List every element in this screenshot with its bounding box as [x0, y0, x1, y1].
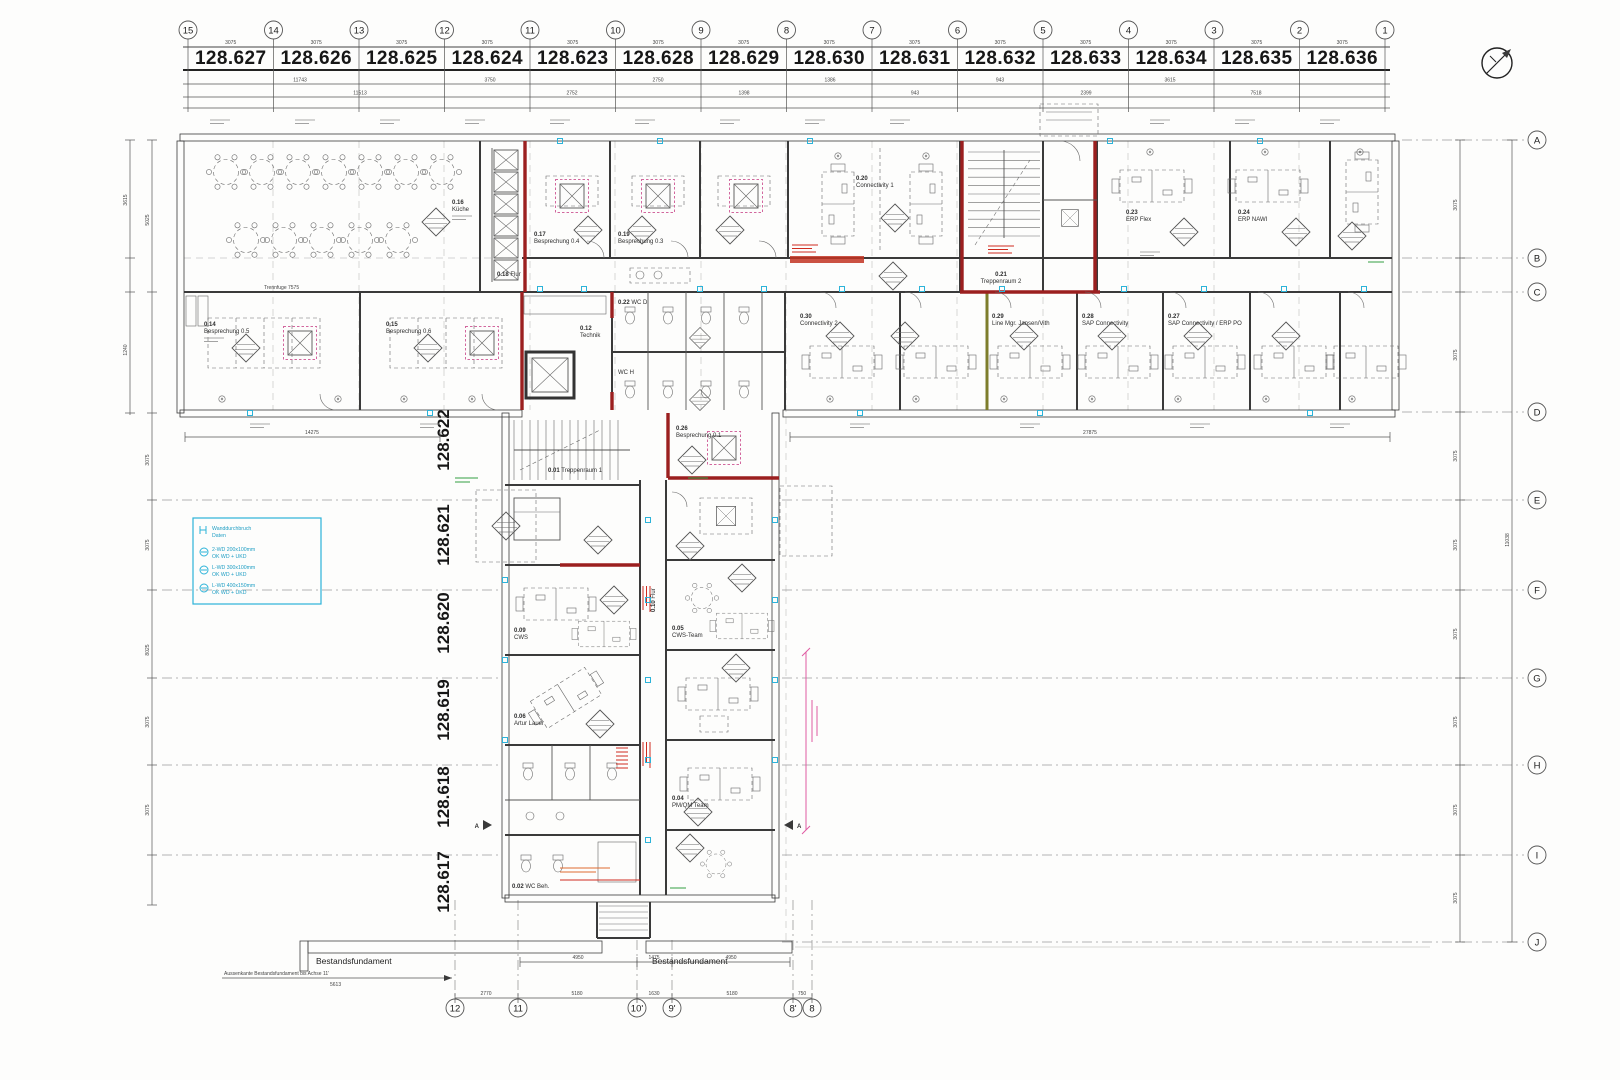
grid-bubble: 14	[268, 26, 279, 37]
level-label: 128.633	[1050, 48, 1121, 69]
svg-text:4950: 4950	[572, 955, 583, 961]
grid-bubble: 10'	[631, 1004, 644, 1015]
internal-grid-lines	[184, 141, 1299, 997]
svg-text:11038: 11038	[1505, 533, 1511, 547]
room-label: 0.10 Flur	[651, 588, 657, 612]
svg-text:0.29: 0.29	[992, 314, 1004, 320]
grid-bubble: 11	[513, 1004, 523, 1015]
grid-right-bubbles: A B C D E F G H I J	[1528, 131, 1546, 951]
svg-text:3075: 3075	[145, 539, 151, 550]
svg-text:5025: 5025	[145, 214, 151, 225]
room-sap-erp-po: 0.27 SAP Connectivity / ERP PO	[1078, 314, 1242, 402]
wall-south-right	[783, 410, 1395, 417]
grid-bubble: G	[1533, 674, 1540, 685]
svg-text:Besprechung 0.4: Besprechung 0.4	[534, 239, 580, 245]
svg-text:3075: 3075	[1080, 40, 1091, 46]
room-office-ne	[1338, 149, 1378, 250]
grid-bubble: A	[1534, 136, 1541, 147]
svg-text:0.27: 0.27	[1168, 314, 1180, 320]
level-label: 128.630	[793, 48, 864, 69]
svg-text:3075: 3075	[1453, 199, 1459, 210]
svg-text:3075: 3075	[1453, 349, 1459, 360]
svg-text:5613: 5613	[330, 982, 341, 988]
grid-bubble: I	[1536, 851, 1539, 862]
svg-text:3075: 3075	[1166, 40, 1177, 46]
grid-top-dim-numbers: 11743 3750 2750 1386 943 3615 11513 2752…	[293, 78, 1262, 97]
grid-bubble: 8'	[789, 1004, 796, 1015]
grid-right: 3075 3075 3075 3075 3075 3075 3075 3075 …	[162, 131, 1546, 951]
grid-right-dim-numbers: 3075 3075 3075 3075 3075 3075 3075 3075 …	[1453, 199, 1511, 903]
svg-text:3075: 3075	[567, 40, 578, 46]
room-wc-south	[505, 745, 640, 835]
svg-text:3075: 3075	[1453, 539, 1459, 550]
svg-text:0.22 WC D: 0.22 WC D	[618, 300, 648, 306]
trennfuge-label: Trennfuge 7575	[264, 285, 299, 291]
room-artur-lauer: 0.06 Artur Lauer	[505, 663, 640, 745]
stair-treppenraum-1: 0.01 Treppenraum 1	[505, 420, 640, 485]
grid-bubble: 1	[1382, 26, 1387, 37]
svg-text:A: A	[797, 824, 802, 830]
wall-south-left	[180, 410, 522, 417]
room-besprechung-05: 0.14 Besprechung 0.5	[204, 318, 341, 410]
section-marker-left: A	[475, 820, 492, 830]
south-level-labels: 128.622 128.621 128.620 128.619 128.618 …	[434, 409, 453, 912]
svg-text:11743: 11743	[293, 78, 307, 84]
room-sw-2	[505, 498, 640, 565]
svg-text:3075: 3075	[311, 40, 322, 46]
svg-text:3075: 3075	[653, 40, 664, 46]
svg-text:0.15: 0.15	[386, 322, 398, 328]
grid-top-bubbles: 15 14 13 12 11 10 9 8 7 6 5 4 3 2 1	[179, 21, 1394, 39]
svg-text:0.06: 0.06	[514, 714, 526, 720]
svg-text:0.09: 0.09	[514, 628, 526, 634]
svg-text:1386: 1386	[824, 78, 835, 84]
room-connectivity-2: 0.30 Connectivity 2	[800, 314, 882, 402]
level-label: 128.635	[1221, 48, 1293, 69]
svg-text:PM/QM Team: PM/QM Team	[672, 803, 709, 809]
legend-title: Wanddurchbruch	[212, 526, 251, 532]
svg-text:3075: 3075	[145, 454, 151, 465]
room-se-4	[666, 654, 775, 740]
wall-bottom-south	[505, 895, 775, 902]
red-walls-north	[522, 141, 1100, 410]
rooms-se-desks	[1165, 322, 1406, 402]
svg-text:4950: 4950	[725, 955, 736, 961]
svg-text:0.19: 0.19	[618, 232, 630, 238]
section-marker-right: A	[784, 820, 802, 830]
svg-text:1398: 1398	[738, 91, 749, 97]
annex-dashed-east	[780, 486, 832, 556]
svg-text:0.04: 0.04	[672, 796, 684, 802]
room-besprechung-02	[716, 176, 770, 244]
wing-north: 0.16 Küche 0.17 Besprechung 0.4 0.19 Bes…	[177, 104, 1406, 428]
svg-text:CWS: CWS	[514, 635, 528, 641]
svg-text:3075: 3075	[995, 40, 1006, 46]
svg-text:Artur Lauer: Artur Lauer	[514, 721, 544, 727]
level-label: 128.620	[434, 592, 453, 653]
svg-text:3075: 3075	[1453, 450, 1459, 461]
svg-text:3615: 3615	[123, 194, 129, 205]
level-label: 128.617	[434, 851, 453, 912]
svg-text:1240: 1240	[123, 344, 129, 355]
svg-text:27875: 27875	[1083, 430, 1097, 436]
wing-dim-lines: 14275 27875 Trennfuge 7575	[185, 285, 1390, 442]
svg-text:Connectivity 1: Connectivity 1	[856, 183, 894, 189]
room-besprechung-04: 0.17 Besprechung 0.4	[534, 176, 602, 245]
svg-text:11513: 11513	[353, 91, 367, 97]
grid-bubble: 12	[439, 26, 450, 37]
room-besprechung-01: 0.26 Besprechung 0.1	[668, 413, 779, 478]
svg-text:5180: 5180	[571, 991, 582, 997]
svg-text:Line Mgr. Jansen/Vith: Line Mgr. Jansen/Vith	[992, 321, 1050, 327]
svg-text:943: 943	[911, 91, 920, 97]
legend-item: L-WD 300x100mm	[212, 565, 255, 571]
wc-block: 0.22 WC D WC H	[612, 268, 785, 411]
svg-text:ERP NAWI: ERP NAWI	[1238, 217, 1268, 223]
grid-bubble: F	[1534, 586, 1540, 597]
svg-text:Besprechung 0.6: Besprechung 0.6	[386, 329, 432, 335]
grid-bubble: 11	[525, 26, 535, 37]
svg-text:3075: 3075	[396, 40, 407, 46]
grid-bubble: 15	[183, 26, 194, 37]
svg-text:0.20: 0.20	[856, 176, 868, 182]
svg-text:2752: 2752	[566, 91, 577, 97]
svg-text:2750: 2750	[652, 78, 663, 84]
foundation-note: Aussenkante Bestandsfundament bis Achse …	[224, 971, 329, 977]
grid-bubble: 3	[1211, 26, 1216, 37]
svg-text:7518: 7518	[1250, 91, 1261, 97]
south-annotations	[455, 478, 778, 888]
svg-text:0.30: 0.30	[800, 314, 812, 320]
room-canteen: 0.16 Küche	[206, 155, 472, 258]
grid-bubble: 8	[784, 26, 789, 37]
svg-text:3075: 3075	[1453, 716, 1459, 727]
room-pm-qm-team: 0.04 PM/QM Team	[666, 768, 775, 830]
plan-canvas: 15 14 13 12 11 10 9 8 7 6 5 4 3 2 1 3075…	[0, 0, 1620, 1080]
floor-plan-drawing: 15 14 13 12 11 10 9 8 7 6 5 4 3 2 1 3075…	[0, 0, 1620, 1080]
level-label: 128.631	[879, 48, 951, 69]
grid-top: 15 14 13 12 11 10 9 8 7 6 5 4 3 2 1 3075…	[179, 21, 1394, 112]
grid-bubble: 13	[354, 26, 365, 37]
dims-left: 3615 1240 5025 8025 3075 3075 3075 3075	[123, 140, 157, 905]
level-label: 128.627	[195, 48, 266, 69]
room-cws: 0.09 CWS	[505, 586, 640, 655]
room-se-6	[676, 834, 732, 878]
annex-dashed-west	[476, 490, 536, 562]
grid-bubble: 12	[450, 1004, 461, 1015]
room-erp-nawi: 0.24 ERP NAWI	[1228, 149, 1310, 246]
room-wc-beh: 0.02 WC Beh.	[512, 842, 636, 890]
level-label: 128.632	[964, 48, 1035, 69]
svg-text:0.28: 0.28	[1082, 314, 1094, 320]
svg-text:3075: 3075	[145, 804, 151, 815]
legend-item: L-WD 400x150mm	[212, 583, 255, 589]
grid-bubble: 9	[698, 26, 703, 37]
red-corridor-annotation	[790, 256, 864, 263]
svg-text:1630: 1630	[648, 991, 659, 997]
svg-text:0.23: 0.23	[1126, 210, 1138, 216]
entry-lobby	[1040, 104, 1098, 226]
bottom-extension	[597, 902, 650, 938]
svg-text:2399: 2399	[1080, 91, 1091, 97]
room-erp-flex: 0.23 ERP Flex	[1112, 149, 1198, 246]
svg-text:0.26: 0.26	[676, 426, 688, 432]
wall-north	[180, 134, 1395, 141]
svg-text:3075: 3075	[1453, 628, 1459, 639]
svg-text:A: A	[475, 824, 480, 830]
svg-text:3615: 3615	[1164, 78, 1175, 84]
svg-text:0.05: 0.05	[672, 626, 684, 632]
svg-text:3075: 3075	[909, 40, 920, 46]
svg-text:0.21: 0.21	[995, 272, 1007, 278]
grid-bottom: Aussenkante Bestandsfundament bis Achse …	[222, 955, 821, 1017]
level-label: 128.628	[622, 48, 693, 69]
legend-item: 2-WD 200x100mm	[212, 547, 255, 553]
svg-text:Besprechung 0.3: Besprechung 0.3	[618, 239, 664, 245]
svg-text:SAP Connectivity: SAP Connectivity	[1082, 321, 1128, 327]
level-label: 128.619	[434, 679, 453, 740]
corridor-north: 0.18 Flur	[497, 241, 1367, 308]
svg-text:OK WD + UKD: OK WD + UKD	[212, 572, 247, 578]
svg-text:3075: 3075	[1453, 804, 1459, 815]
legend-box: Wanddurchbruch Daten 2-WD 200x100mm OK W…	[193, 518, 321, 604]
svg-text:Technik: Technik	[580, 333, 601, 339]
exterior-steps	[186, 296, 196, 326]
grid-bubble: 5	[1040, 26, 1045, 37]
level-label: 128.624	[451, 48, 523, 69]
svg-text:0.24: 0.24	[1238, 210, 1250, 216]
svg-text:750: 750	[798, 991, 807, 997]
grid-bubble: 4	[1126, 26, 1131, 37]
svg-text:3075: 3075	[1337, 40, 1348, 46]
room-sap-connectivity: 0.28 SAP Connectivity	[990, 314, 1128, 402]
svg-text:CWS-Team: CWS-Team	[672, 633, 703, 639]
grid-bottom-bubbles: 12 11 10' 9' 8' 8	[446, 999, 821, 1017]
svg-text:0.12: 0.12	[580, 326, 592, 332]
svg-text:8025: 8025	[145, 644, 151, 655]
grid-bubble: E	[1534, 496, 1540, 507]
magenta-dim-line	[802, 648, 817, 834]
wall-west	[177, 141, 184, 413]
grid-bubble: 7	[869, 26, 874, 37]
level-label: 128.626	[280, 48, 351, 69]
room-besprechung-03: 0.19 Besprechung 0.3	[618, 176, 684, 245]
svg-text:3075: 3075	[145, 716, 151, 727]
svg-text:0.17: 0.17	[534, 232, 546, 238]
foundation: Bestandsfundament Bestandsfundament	[300, 941, 1430, 971]
svg-text:0.18 Flur: 0.18 Flur	[497, 272, 521, 278]
svg-text:1475: 1475	[648, 955, 659, 961]
level-label: 128.629	[708, 48, 779, 69]
svg-text:WC H: WC H	[618, 370, 634, 376]
svg-text:3750: 3750	[484, 78, 495, 84]
foundation-label: Bestandsfundament	[652, 956, 728, 966]
room-connectivity-1: 0.20 Connectivity 1	[822, 153, 942, 244]
window-annotations	[210, 120, 1384, 428]
svg-text:3075: 3075	[824, 40, 835, 46]
svg-text:3075: 3075	[482, 40, 493, 46]
level-label: 128.623	[537, 48, 608, 69]
room-se-2	[666, 492, 775, 560]
svg-text:OK WD + UKD: OK WD + UKD	[212, 590, 247, 596]
grid-bubble: 9'	[668, 1004, 675, 1015]
stair-treppenraum-2: 0.21 Treppenraum 2	[968, 150, 1040, 285]
svg-text:3075: 3075	[1453, 892, 1459, 903]
svg-text:3075: 3075	[1251, 40, 1262, 46]
room-line-mgr: 0.29 Line Mgr. Jansen/Vith	[891, 314, 1050, 402]
grid-bubble: J	[1535, 938, 1540, 949]
foundation-label: Bestandsfundament	[316, 956, 392, 966]
svg-text:2770: 2770	[480, 991, 491, 997]
svg-text:0.02 WC Beh.: 0.02 WC Beh.	[512, 884, 550, 890]
kitchen-counter	[492, 148, 518, 282]
svg-text:OK WD + UKD: OK WD + UKD	[212, 554, 247, 560]
wall-east-south	[772, 413, 779, 898]
level-label: 128.636	[1306, 48, 1377, 69]
room-cws-team: 0.05 CWS-Team	[666, 564, 775, 650]
svg-text:5180: 5180	[726, 991, 737, 997]
svg-text:Treppenraum 2: Treppenraum 2	[981, 279, 1022, 285]
svg-text:0.01 Treppenraum 1: 0.01 Treppenraum 1	[548, 468, 603, 474]
grid-bubble: B	[1534, 254, 1540, 265]
room-label: Küche	[452, 207, 470, 213]
svg-text:3075: 3075	[225, 40, 236, 46]
svg-text:943: 943	[996, 78, 1005, 84]
grid-bubble: 6	[955, 26, 960, 37]
grid-bubble: 10	[610, 26, 621, 37]
svg-text:Besprechung 0.5: Besprechung 0.5	[204, 329, 250, 335]
grid-bubble: C	[1534, 288, 1541, 299]
core-elevator: 0.12 Technik	[524, 296, 606, 398]
svg-text:0.14: 0.14	[204, 322, 216, 328]
svg-text:14275: 14275	[305, 430, 319, 436]
level-label: 128.625	[366, 48, 438, 69]
level-label: 128.618	[434, 766, 453, 827]
room-label: 0.16	[452, 200, 464, 206]
svg-text:ERP Flex: ERP Flex	[1126, 217, 1151, 223]
svg-text:Daten: Daten	[212, 533, 226, 539]
svg-text:3075: 3075	[738, 40, 749, 46]
svg-text:Besprechung 0.1: Besprechung 0.1	[676, 433, 722, 439]
grid-bubble: 2	[1297, 26, 1302, 37]
compass-north-icon	[1482, 48, 1512, 78]
grid-bubble: H	[1534, 761, 1541, 772]
level-label: 128.622	[434, 409, 453, 470]
grid-bubble: 8	[809, 1004, 814, 1015]
wing-south: 0.10 Flur 0.01 Treppenraum 1 0.26 Bespre…	[455, 413, 832, 938]
svg-text:Connectivity 2: Connectivity 2	[800, 321, 838, 327]
level-label: 128.634	[1135, 48, 1207, 69]
grid-bubble: D	[1534, 408, 1541, 419]
level-label: 128.621	[434, 504, 453, 565]
radiator-red	[616, 748, 628, 768]
svg-text:SAP Connectivity / ERP PO: SAP Connectivity / ERP PO	[1168, 321, 1242, 327]
